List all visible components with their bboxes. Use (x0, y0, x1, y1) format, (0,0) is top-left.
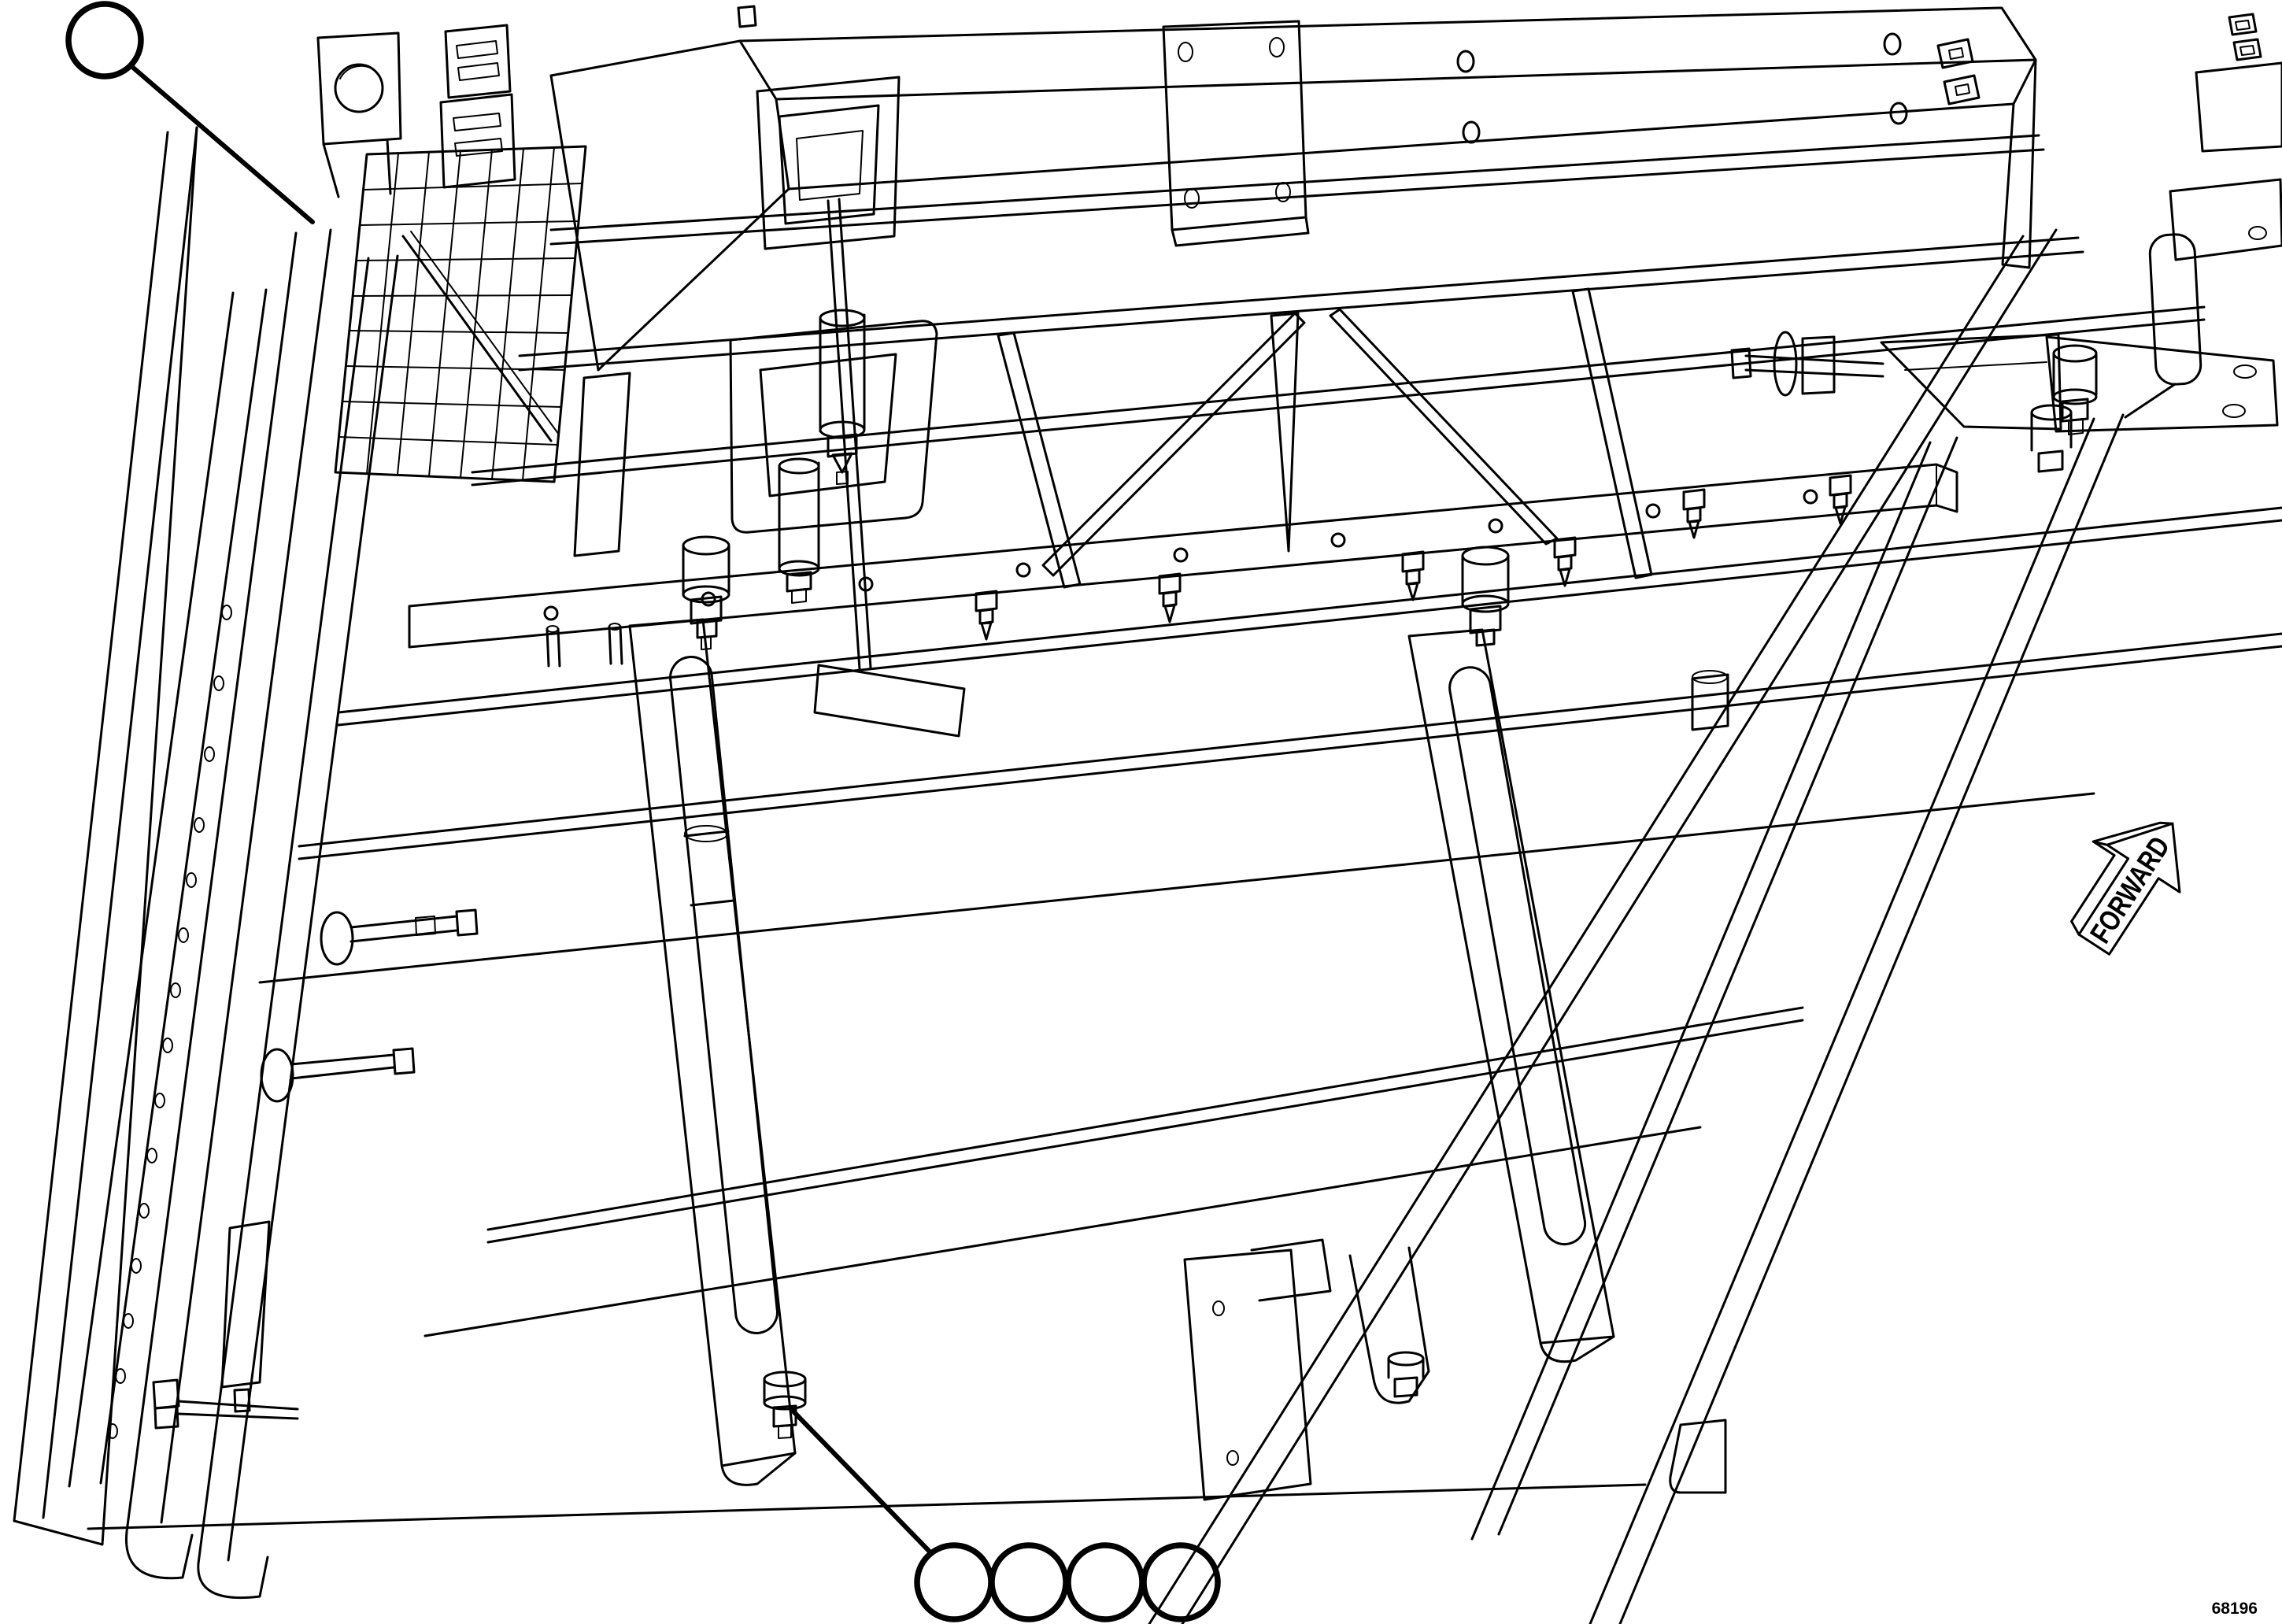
frame-rails (88, 135, 2282, 1529)
leader-line (791, 1409, 929, 1551)
forward-arrow-label: FORWARD (2084, 830, 2176, 949)
bolt (1403, 552, 1423, 600)
bolt (1389, 1352, 1423, 1396)
left-side-rail (14, 128, 398, 1598)
bolt (1159, 574, 1180, 622)
ring-bolt (321, 910, 477, 964)
callout-circle (68, 4, 141, 76)
bolt (1684, 490, 1704, 538)
callout-circle (917, 1545, 991, 1619)
callout-target-bolt (764, 1372, 805, 1438)
tow-bracket (318, 33, 401, 197)
diagram-page: FORWARD 68196 (0, 0, 2282, 1624)
hanger-channel-right (1409, 547, 1614, 1362)
pin (609, 623, 622, 664)
technical-drawing: FORWARD 68196 (0, 0, 2282, 1624)
forward-arrow: FORWARD (2047, 793, 2209, 968)
mesh-grille (335, 146, 586, 482)
louver-vent (441, 25, 515, 187)
bolt (976, 591, 997, 639)
fasteners (153, 475, 1851, 1438)
drawing-number: 68196 (2212, 1600, 2258, 1618)
callout-bottom-row (791, 1409, 1218, 1619)
access-panel (222, 373, 630, 1387)
callout-circle (1068, 1545, 1142, 1619)
callout-circle (992, 1545, 1066, 1619)
bolt (1555, 538, 1575, 586)
bottom-brackets (1185, 1240, 1429, 1500)
right-frame-rails (1149, 230, 2123, 1624)
pin (547, 626, 560, 666)
drilled-cross-bar (409, 464, 1957, 647)
callout-circle (1144, 1545, 1218, 1619)
ring-bolt (261, 1049, 414, 1101)
